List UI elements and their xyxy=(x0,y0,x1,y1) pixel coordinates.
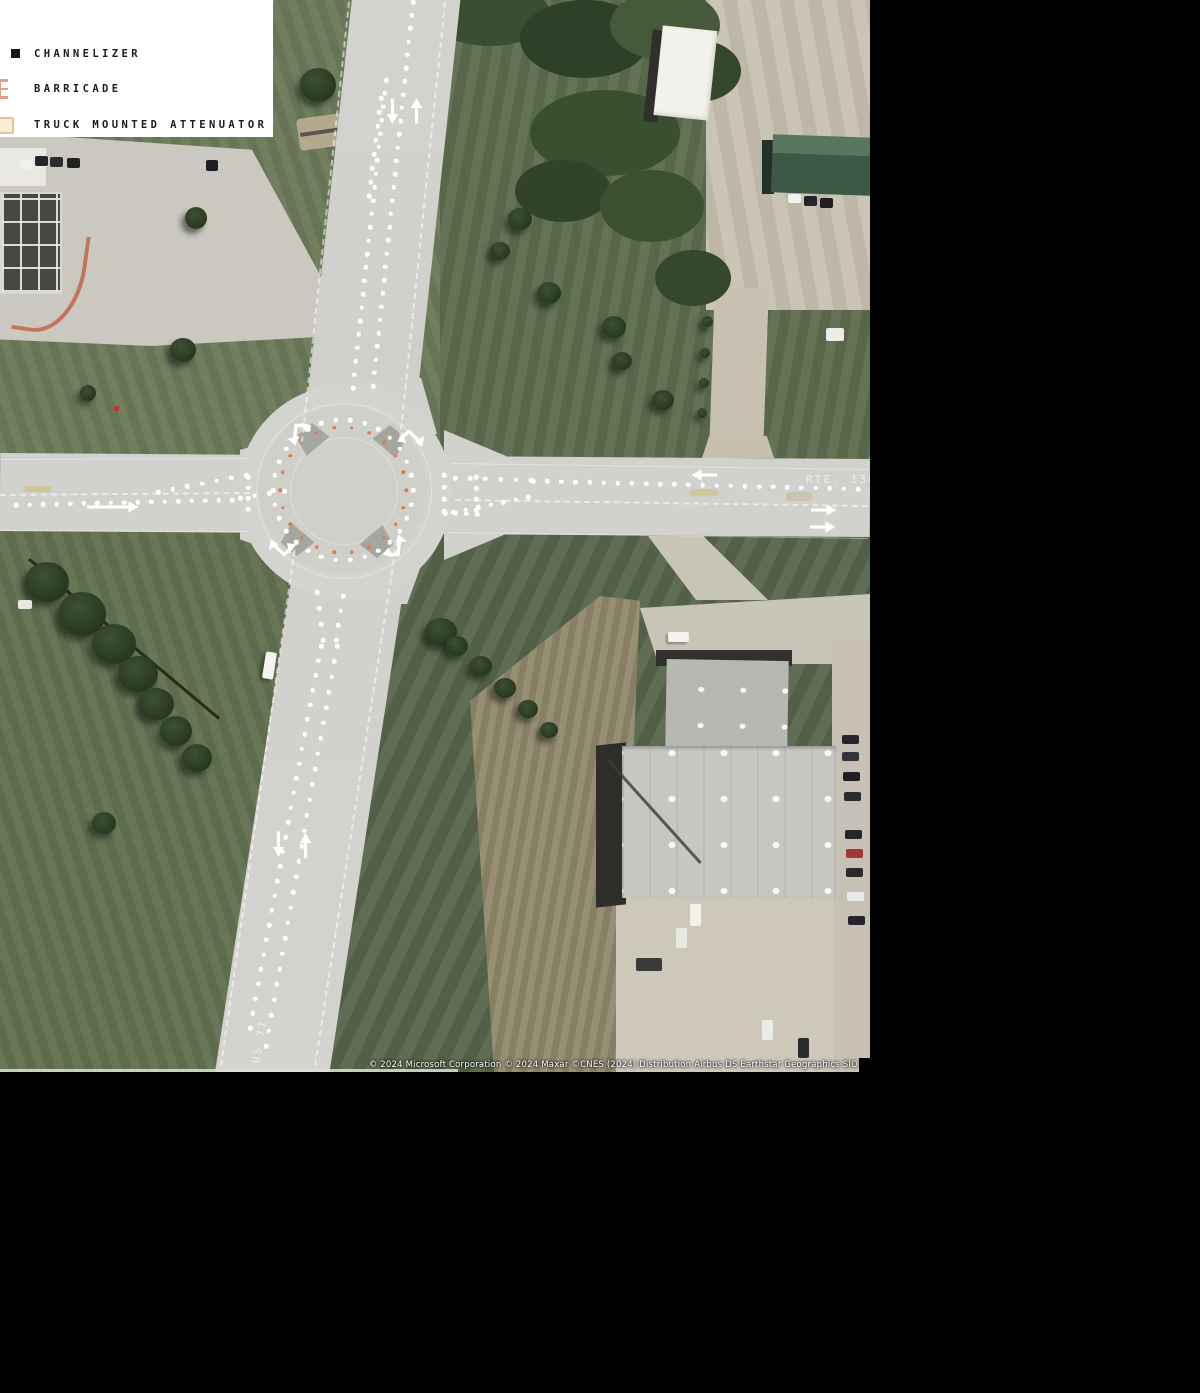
channelizer-dot xyxy=(375,158,380,163)
channelizer-dot xyxy=(324,705,329,710)
channelizer-dot xyxy=(27,502,32,507)
channelizer-dot xyxy=(409,502,414,507)
orange-device-dot xyxy=(281,506,285,510)
channelizer-dot xyxy=(453,476,458,481)
channelizer-dot xyxy=(476,505,481,510)
channelizer-dot xyxy=(300,747,305,752)
channelizer-dot xyxy=(319,421,324,426)
channelizer-dot xyxy=(264,938,269,943)
channelizer-dot xyxy=(302,732,307,737)
channelizer-dot xyxy=(378,131,383,136)
channelizer-dot xyxy=(371,384,376,389)
channelizer-dot xyxy=(488,502,493,507)
lane-arrow-left xyxy=(691,469,717,482)
channelizer-dot xyxy=(229,476,234,481)
orange-device-dot xyxy=(383,441,387,445)
channelizer-dot xyxy=(318,736,323,741)
channelizer-dot xyxy=(316,751,321,756)
lane-marking xyxy=(452,463,868,470)
channelizer-dot xyxy=(393,172,398,177)
channelizer-dot xyxy=(368,225,373,230)
channelizer-dot xyxy=(185,484,190,489)
channelizer-dot xyxy=(397,132,402,137)
channelizer-dot xyxy=(368,180,373,185)
channelizer-dot xyxy=(361,292,366,297)
channelizer-dot xyxy=(390,198,395,203)
roundabout-bent-arrow xyxy=(279,412,317,450)
channelizer-dot xyxy=(382,278,387,283)
channelizer-dot xyxy=(267,923,272,928)
channelizer-dot xyxy=(313,767,318,772)
channelizer-dot xyxy=(246,485,251,490)
tma-icon xyxy=(0,117,14,134)
traffic-control-plan-map[interactable]: RTE. 136 US 71 © 2024 Microsoft Corporat… xyxy=(0,0,870,1072)
channelizer-dot xyxy=(644,482,649,487)
channelizer-dot xyxy=(54,502,59,507)
channelizer-dot xyxy=(149,500,154,505)
orange-device-dot xyxy=(402,471,406,475)
channelizer-dot xyxy=(362,554,367,559)
orange-device-dot xyxy=(404,488,408,492)
channelizer-dot xyxy=(278,864,283,869)
channelizer-dot xyxy=(374,138,379,143)
channelizer-dot xyxy=(329,675,334,680)
channelizer-dot xyxy=(371,198,376,203)
orange-device-dot xyxy=(402,506,406,510)
channelizer-dot xyxy=(311,688,316,693)
device-layer xyxy=(0,0,870,1072)
channelizer-dot xyxy=(526,495,531,500)
lane-arrow-down xyxy=(386,98,399,124)
channelizer-dot xyxy=(385,251,390,256)
channelizer-dot xyxy=(41,502,46,507)
channelizer-dot xyxy=(407,39,412,44)
channelizer-dot xyxy=(372,185,377,190)
barricade-icon-bar xyxy=(0,88,8,91)
channelizer-dot xyxy=(352,372,357,377)
channelizer-dot xyxy=(405,459,410,464)
channelizer-dot xyxy=(498,477,503,482)
channelizer-dot xyxy=(616,481,621,486)
channelizer-dot xyxy=(310,782,315,787)
channelizer-dot xyxy=(271,488,276,493)
channelizer-dot xyxy=(411,488,416,493)
channelizer-dot xyxy=(799,485,804,490)
channelizer-dot xyxy=(468,476,473,481)
legend-item-tma: TRUCK MOUNTED ATTENUATOR xyxy=(0,115,267,135)
channelizer-dot xyxy=(348,418,353,423)
channelizer-dot xyxy=(514,477,519,482)
orange-device-dot xyxy=(288,522,292,526)
icon-slot xyxy=(0,44,34,64)
channelizer-dot xyxy=(354,359,359,364)
channelizer-dot xyxy=(253,996,258,1001)
channelizer-dot xyxy=(529,478,534,483)
channelizer-dot xyxy=(333,557,338,562)
lane-marking xyxy=(314,540,398,1066)
orange-device-dot xyxy=(315,546,319,550)
channelizer-dot xyxy=(189,499,194,504)
channelizer-dot xyxy=(277,516,282,521)
channelizer-dot xyxy=(68,502,73,507)
lane-arrow-right xyxy=(810,504,836,517)
orange-device-dot xyxy=(288,454,292,458)
orange-device-dot xyxy=(350,551,354,555)
lane-marking xyxy=(0,458,250,460)
channelizer-dot xyxy=(291,890,296,895)
channelizer-dot xyxy=(559,479,564,484)
channelizer-dot xyxy=(380,291,385,296)
channelizer-dot xyxy=(170,487,175,492)
channelizer-dot xyxy=(362,279,367,284)
channelizer-dot xyxy=(321,638,326,643)
channelizer-dot xyxy=(375,124,380,129)
orange-device-dot xyxy=(332,426,336,430)
channelizer-dot xyxy=(405,516,410,521)
lane-arrow-up xyxy=(299,833,312,859)
channelizer-dot xyxy=(379,118,384,123)
channelizer-dot xyxy=(396,145,401,150)
channelizer-dot xyxy=(14,503,19,508)
channelizer-dot xyxy=(398,119,403,124)
channelizer-dot xyxy=(275,879,280,884)
channelizer-dot xyxy=(261,952,266,957)
channelizer-dot xyxy=(404,66,409,71)
barricade-icon xyxy=(0,79,9,99)
channelizer-dot xyxy=(474,486,479,491)
channelizer-dot xyxy=(365,252,370,257)
channelizer-dot xyxy=(277,459,282,464)
channelizer-dot xyxy=(162,499,167,504)
channelizer-dot xyxy=(376,427,381,432)
channelizer-dot xyxy=(334,638,339,643)
channelizer-dot xyxy=(319,644,324,649)
channelizer-dot xyxy=(443,511,448,516)
channelizer-dot xyxy=(388,436,393,441)
channelizer-dot xyxy=(286,820,291,825)
icon-slot xyxy=(0,79,34,99)
channelizer-dot xyxy=(275,982,280,987)
channelizer-dot xyxy=(372,152,377,157)
legend-item-label: CHANNELIZER xyxy=(34,48,141,60)
barricade-icon-bar xyxy=(0,79,8,82)
channelizer-dot xyxy=(382,91,387,96)
icon-slot xyxy=(0,115,34,135)
lane-arrow-right xyxy=(809,521,835,534)
channelizer-dot xyxy=(338,608,343,613)
roundabout-bent-arrow xyxy=(263,530,301,568)
channelizer-dot xyxy=(402,79,407,84)
channelizer-dot xyxy=(483,477,488,482)
channelizer-dot xyxy=(442,473,447,478)
channelizer-dot xyxy=(464,511,469,516)
channelizer-dot xyxy=(294,875,299,880)
channelizer-dot xyxy=(409,473,414,478)
channelizer-dot xyxy=(316,658,321,663)
orange-device-dot xyxy=(394,454,398,458)
lane-marking xyxy=(0,530,250,532)
channelizer-dot xyxy=(377,145,382,150)
channelizer-dot xyxy=(333,418,338,423)
channelizer-dot xyxy=(230,498,235,503)
channelizer-dot xyxy=(369,212,374,217)
channelizer-dot xyxy=(374,171,379,176)
legend-item-label: BARRICADE xyxy=(34,83,122,95)
channelizer-dot xyxy=(356,332,361,337)
channelizer-dot xyxy=(280,951,285,956)
channelizer-dot xyxy=(453,511,458,516)
legend-item-label: TRUCK MOUNTED ATTENUATOR xyxy=(34,119,267,131)
channelizer-dot xyxy=(601,480,606,485)
channelizer-dot xyxy=(757,484,762,489)
channelizer-dot xyxy=(743,484,748,489)
channelizer-dot xyxy=(256,982,261,987)
channelizer-dot xyxy=(573,480,578,485)
channelizer-dot xyxy=(362,421,367,426)
channelizer-dot xyxy=(317,606,322,611)
channelizer-dot xyxy=(306,548,311,553)
channelizer-square-icon xyxy=(11,49,20,58)
channelizer-dot xyxy=(658,482,663,487)
lane-marking xyxy=(220,540,297,1066)
channelizer-dot xyxy=(319,622,324,627)
channelizer-dot xyxy=(319,554,324,559)
channelizer-dot xyxy=(272,998,277,1003)
channelizer-dot xyxy=(405,53,410,58)
channelizer-dot xyxy=(248,1026,253,1031)
channelizer-dot xyxy=(377,110,382,115)
channelizer-dot xyxy=(272,502,277,507)
barricade-icon-bar xyxy=(0,96,8,99)
channelizer-dot xyxy=(282,489,287,494)
channelizer-dot xyxy=(305,717,310,722)
channelizer-dot xyxy=(297,859,302,864)
page: RTE. 136 US 71 © 2024 Microsoft Corporat… xyxy=(0,0,1200,1393)
channelizer-dot xyxy=(545,479,550,484)
channelizer-dot xyxy=(379,96,384,101)
channelizer-dot xyxy=(291,791,296,796)
channelizer-dot xyxy=(374,357,379,362)
lane-marking xyxy=(301,2,350,442)
channelizer-dot xyxy=(442,497,447,502)
channelizer-dot xyxy=(442,485,447,490)
channelizer-dot xyxy=(313,673,318,678)
channelizer-dot xyxy=(341,594,346,599)
channelizer-dot xyxy=(81,501,86,506)
channelizer-dot xyxy=(176,499,181,504)
channelizer-dot xyxy=(771,485,776,490)
channelizer-dot xyxy=(335,644,340,649)
channelizer-dot xyxy=(411,0,416,4)
channelizer-dot xyxy=(216,498,221,503)
lane-arrow-right xyxy=(86,501,138,514)
channelizer-dot xyxy=(355,346,360,351)
channelizer-dot xyxy=(277,967,282,972)
channelizer-dot xyxy=(409,13,414,18)
channelizer-dot xyxy=(246,507,251,512)
channelizer-dot xyxy=(376,331,381,336)
channelizer-dot xyxy=(272,894,277,899)
lane-marking xyxy=(0,492,250,496)
channelizer-dot xyxy=(348,557,353,562)
channelizer-dot xyxy=(305,813,310,818)
channelizer-dot xyxy=(700,483,705,488)
lane-arrow-down xyxy=(272,831,285,857)
channelizer-dot xyxy=(286,921,291,926)
channelizer-dot xyxy=(297,761,302,766)
channelizer-dot xyxy=(408,26,413,31)
channelizer-dot xyxy=(327,690,332,695)
lane-marking xyxy=(455,499,868,507)
channelizer-dot xyxy=(383,265,388,270)
channelizer-dot xyxy=(364,265,369,270)
channelizer-dot xyxy=(379,304,384,309)
channelizer-dot xyxy=(336,623,341,628)
channelizer-dot xyxy=(238,496,243,501)
channelizer-dot xyxy=(269,1013,274,1018)
channelizer-dot xyxy=(367,238,372,243)
orange-device-dot xyxy=(278,488,282,492)
channelizer-dot xyxy=(332,659,337,664)
channelizer-dot xyxy=(630,481,635,486)
channelizer-dot xyxy=(252,493,257,498)
channelizer-dot xyxy=(375,344,380,349)
channelizer-dot xyxy=(272,473,277,478)
channelizer-dot xyxy=(200,481,205,486)
channelizer-dot xyxy=(214,478,219,483)
channelizer-dot xyxy=(372,371,377,376)
orange-device-dot xyxy=(332,551,336,555)
channelizer-dot xyxy=(587,480,592,485)
channelizer-dot xyxy=(288,905,293,910)
channelizer-dot xyxy=(714,483,719,488)
channelizer-dot xyxy=(686,483,691,488)
channelizer-dot xyxy=(367,194,372,199)
channelizer-dot xyxy=(270,908,275,913)
channelizer-dot xyxy=(672,482,677,487)
lane-arrow-up xyxy=(410,98,423,124)
lane-marking xyxy=(448,532,868,539)
channelizer-dot xyxy=(384,78,389,83)
channelizer-dot xyxy=(308,703,313,708)
channelizer-dot xyxy=(250,1011,255,1016)
orange-device-dot xyxy=(281,471,285,475)
orange-device-dot xyxy=(394,522,398,526)
channelizer-dot xyxy=(246,496,251,501)
orange-device-dot xyxy=(367,431,371,435)
channelizer-dot xyxy=(785,485,790,490)
channelizer-dot xyxy=(401,92,406,97)
channelizer-dot xyxy=(387,225,392,230)
channelizer-dot xyxy=(729,484,734,489)
channelizer-dot xyxy=(321,721,326,726)
channelizer-dot xyxy=(842,486,847,491)
channelizer-dot xyxy=(389,212,394,217)
legend-panel: CHANNELIZER BARRICADE TRUCK MOUNTED xyxy=(0,0,273,137)
legend-item-channelizer: CHANNELIZER xyxy=(0,44,141,64)
channelizer-dot xyxy=(400,106,405,111)
orange-device-dot xyxy=(350,426,354,430)
channelizer-dot xyxy=(358,319,363,324)
orange-device-dot xyxy=(315,431,319,435)
channelizer-dot xyxy=(283,936,288,941)
channelizer-dot xyxy=(289,805,294,810)
channelizer-dot xyxy=(856,487,861,492)
legend-item-barricade: BARRICADE xyxy=(0,79,122,99)
channelizer-dot xyxy=(381,105,386,110)
channelizer-dot xyxy=(315,590,320,595)
channelizer-dot xyxy=(394,159,399,164)
orange-device-dot xyxy=(300,536,304,540)
map-attribution: © 2024 Microsoft Corporation © 2024 Maxa… xyxy=(0,1058,858,1072)
channelizer-dot xyxy=(370,166,375,171)
channelizer-dot xyxy=(386,238,391,243)
channelizer-dot xyxy=(203,498,208,503)
channelizer-dot xyxy=(813,486,818,491)
channelizer-dot xyxy=(259,967,264,972)
channelizer-dot xyxy=(359,305,364,310)
channelizer-dot xyxy=(307,798,312,803)
channelizer-dot xyxy=(351,386,356,391)
channelizer-dot xyxy=(378,318,383,323)
orange-device-dot xyxy=(367,546,371,550)
channelizer-dot xyxy=(391,185,396,190)
channelizer-dot xyxy=(475,512,480,517)
channelizer-dot xyxy=(827,486,832,491)
attribution-end-cap xyxy=(859,1058,870,1072)
channelizer-dot xyxy=(294,776,299,781)
road-label-rte-136: RTE. 136 xyxy=(806,474,870,486)
channelizer-dot xyxy=(246,475,251,480)
channelizer-dot xyxy=(474,475,479,480)
